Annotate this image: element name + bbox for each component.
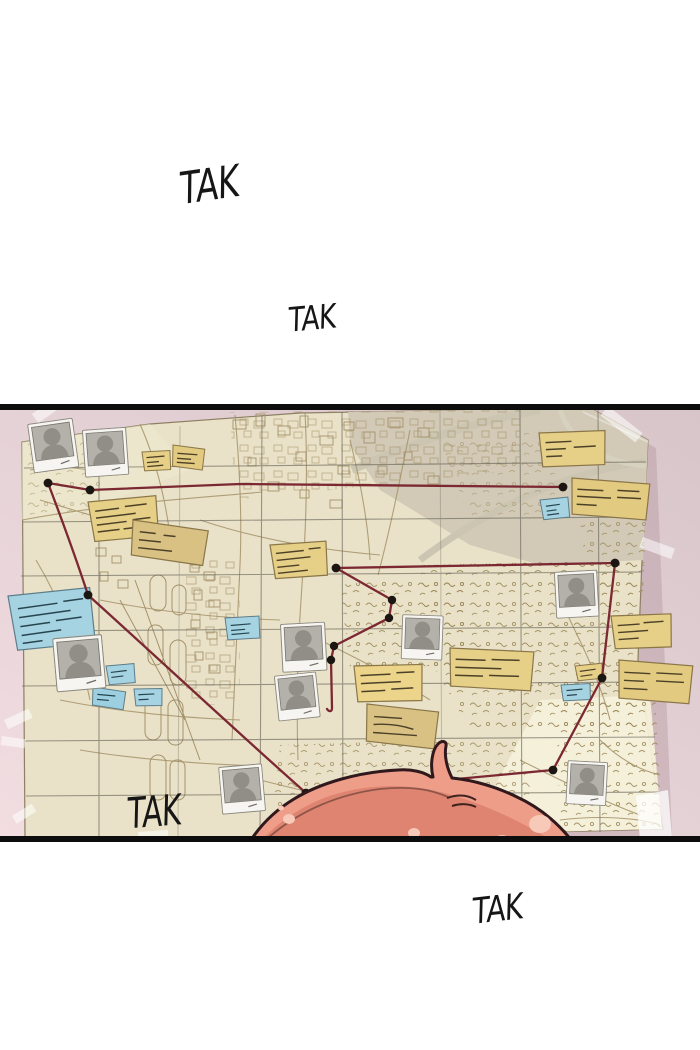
sticky-note [611, 612, 673, 651]
pin [44, 479, 53, 488]
sfx-tak-4: TAK [472, 886, 523, 933]
suspect-photo [28, 418, 79, 473]
comic-page: TAK TAK [0, 0, 700, 1050]
sticky-note [171, 445, 205, 470]
paper-scrap [636, 790, 672, 836]
suspect-photo [554, 570, 599, 618]
sfx-tak-3: TAK [127, 785, 181, 838]
sfx-tak-2: TAK [288, 296, 336, 340]
sticky-note [539, 430, 607, 468]
investigation-panel [0, 404, 700, 842]
sticky-note-blue [561, 682, 591, 701]
sticky-note-blue [106, 663, 136, 686]
sticky-note [270, 539, 329, 581]
suspect-photo [82, 427, 128, 477]
sticky-note [617, 660, 693, 704]
suspect-photo [280, 622, 327, 672]
pin [86, 486, 95, 495]
suspect-photo [219, 764, 266, 814]
pin [559, 483, 568, 492]
pin [598, 674, 607, 683]
board-scene [0, 410, 700, 836]
pin [327, 656, 335, 664]
sfx-tak-1: TAK [179, 155, 238, 216]
sticky-note [142, 450, 172, 472]
pin [611, 559, 620, 568]
sticky-note [570, 478, 650, 520]
sticky-note [364, 704, 439, 749]
pin [549, 766, 558, 775]
suspect-photo [53, 635, 106, 692]
pin [385, 614, 393, 622]
sticky-note [354, 662, 424, 704]
sticky-note-blue [540, 496, 571, 521]
suspect-photo [566, 761, 608, 806]
sticky-note-blue [134, 688, 163, 707]
suspect-photo [401, 615, 443, 660]
pin [388, 596, 396, 604]
pin [332, 564, 341, 573]
suspect-photo [274, 672, 320, 721]
pin [84, 591, 93, 600]
sticky-note [449, 648, 534, 691]
pin [330, 642, 338, 650]
sticky-note-blue [225, 615, 261, 641]
